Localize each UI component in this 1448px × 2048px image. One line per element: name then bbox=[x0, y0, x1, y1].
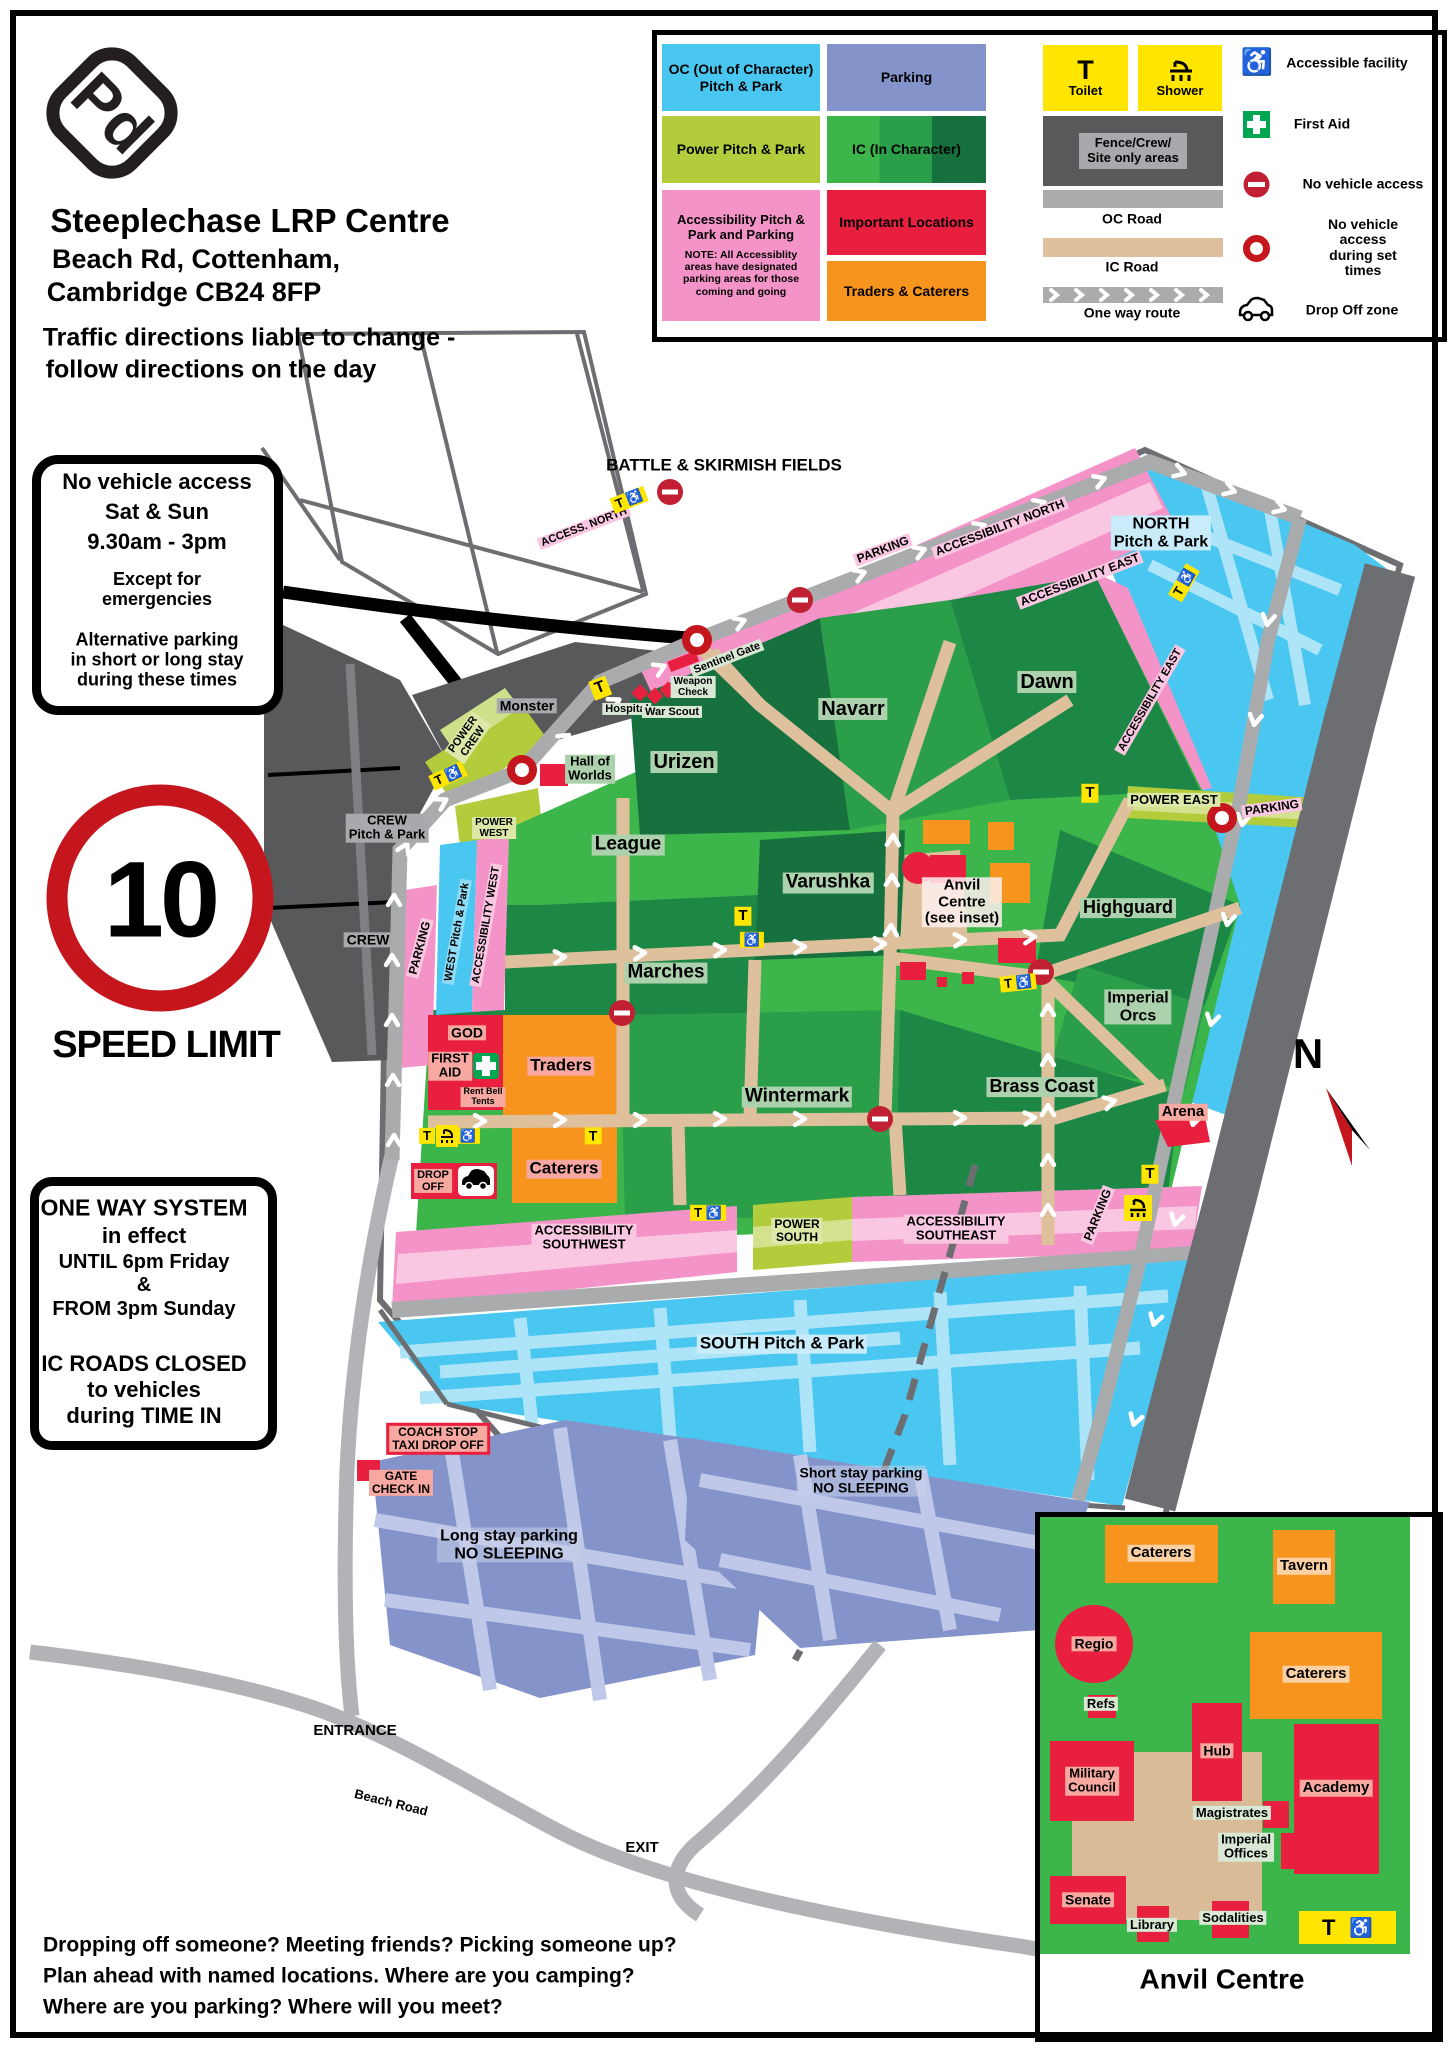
inset-toilet-box: T♿ bbox=[1299, 1911, 1396, 1944]
accessibility-southwest-label: ACCESSIBILITY SOUTHWEST bbox=[532, 1224, 637, 1253]
toilet-icon: T bbox=[1077, 57, 1094, 84]
traffic-note2: follow directions on the day bbox=[43, 356, 380, 384]
legend-toilet-swatch: T Toilet bbox=[1043, 45, 1128, 111]
one-way-l7: to vehicles bbox=[84, 1378, 204, 1402]
logo: Pd bbox=[37, 38, 187, 188]
legend-ic-swatch: IC (In Character) bbox=[827, 116, 986, 183]
crew-label: CREW bbox=[344, 932, 393, 947]
wheelchair-icon: ♿ bbox=[1238, 48, 1276, 77]
coach-stop-label: COACH STOP TAXI DROP OFF bbox=[386, 1423, 490, 1455]
toilet-box: T bbox=[1141, 1165, 1158, 1184]
no-access-l2: Sat & Sun bbox=[102, 500, 212, 524]
accessible-box: ♿ bbox=[456, 1128, 480, 1144]
no-access-l1: No vehicle access bbox=[59, 470, 255, 494]
north-pitch-label: NORTH Pitch & Park bbox=[1111, 515, 1211, 550]
one-way-chevrons bbox=[1043, 287, 1223, 303]
battle-fields-label: BATTLE & SKIRMISH FIELDS bbox=[603, 457, 845, 476]
address-line2: Cambridge CB24 8FP bbox=[44, 278, 325, 308]
toilet-accessible-box: T ♿ bbox=[690, 1205, 726, 1221]
shower-icon bbox=[436, 1125, 458, 1147]
navarr-label: Navarr bbox=[818, 698, 887, 720]
inset-sodalities-label: Sodalities bbox=[1199, 1911, 1266, 1925]
address-line1: Beach Rd, Cottenham, bbox=[49, 245, 343, 275]
legend-oc-road-bar bbox=[1043, 190, 1223, 208]
legend-toilet-label: Toilet bbox=[1069, 84, 1103, 99]
traffic-note1: Traffic directions liable to change - bbox=[40, 324, 459, 352]
league-label: League bbox=[592, 835, 665, 856]
entrance-label: ENTRANCE bbox=[310, 1723, 399, 1740]
wheelchair-icon: ♿ bbox=[1349, 1916, 1373, 1940]
legend-power-swatch: Power Pitch & Park bbox=[662, 116, 820, 183]
legend-ic-road-label: IC Road bbox=[1103, 259, 1162, 274]
gate-check-in-label: GATE CHECK IN bbox=[369, 1470, 433, 1496]
highguard-label: Highguard bbox=[1080, 898, 1176, 918]
one-way-l1: ONE WAY SYSTEM bbox=[37, 1195, 250, 1220]
no-entry-icon bbox=[1243, 171, 1270, 198]
power-south-label: POWER SOUTH bbox=[771, 1218, 822, 1244]
legend-important-swatch: Important Locations bbox=[827, 190, 986, 255]
shower-icon bbox=[1165, 58, 1195, 84]
legend-fence-swatch: Fence/Crew/ Site only areas bbox=[1043, 116, 1223, 186]
legend-first-aid-label: First Aid bbox=[1291, 116, 1353, 131]
monster-label: Monster bbox=[497, 698, 557, 713]
no-access-l5: Alternative parking in short or long sta… bbox=[67, 630, 246, 689]
footer-line1: Dropping off someone? Meeting friends? P… bbox=[40, 1933, 680, 1956]
first-aid-label: FIRST AID bbox=[428, 1052, 472, 1081]
inset-magistrates-label: Magistrates bbox=[1193, 1806, 1271, 1820]
imperial-orcs-label: Imperial Orcs bbox=[1104, 989, 1171, 1024]
speed-label: SPEED LIMIT bbox=[49, 1025, 283, 1067]
first-aid-icon bbox=[1243, 111, 1270, 138]
compass-n-label: N bbox=[1290, 1031, 1326, 1077]
exit-label: EXIT bbox=[622, 1840, 661, 1857]
dawn-label: Dawn bbox=[1017, 671, 1076, 693]
one-way-l4: & bbox=[134, 1274, 154, 1296]
legend-oc-road-label: OC Road bbox=[1099, 211, 1165, 226]
accessible-box: ♿ bbox=[740, 932, 764, 948]
marches-label: Marches bbox=[624, 963, 707, 984]
long-stay-label: Long stay parking NO SLEEPING bbox=[437, 1527, 581, 1562]
inset-refs-label: Refs bbox=[1084, 1697, 1118, 1711]
urizen-label: Urizen bbox=[650, 751, 717, 773]
inset-hub-label: Hub bbox=[1200, 1743, 1233, 1758]
inset-imperial-label: Imperial Offices bbox=[1218, 1833, 1274, 1862]
inset-regio-label: Regio bbox=[1072, 1636, 1117, 1651]
footer-line2: Plan ahead with named locations. Where a… bbox=[40, 1964, 638, 1987]
anvil-centre-label: Anvil Centre (see inset) bbox=[922, 877, 1002, 927]
page-title: Steeplechase LRP Centre bbox=[47, 203, 452, 239]
toilet-icon: T bbox=[1322, 1915, 1335, 1941]
inset-military-label: Military Council bbox=[1065, 1767, 1119, 1796]
varushka-label: Varushka bbox=[783, 873, 874, 894]
legend-fence-label: Fence/Crew/ Site only areas bbox=[1079, 133, 1187, 169]
power-east-label: POWER EAST bbox=[1127, 793, 1220, 807]
one-way-l3: UNTIL 6pm Friday bbox=[56, 1251, 233, 1273]
inset-library-label: Library bbox=[1127, 1918, 1177, 1932]
shower-icon bbox=[1124, 1195, 1152, 1221]
legend-no-access-label: No vehicle access bbox=[1300, 176, 1427, 191]
legend-traders-swatch: Traders & Caterers bbox=[827, 261, 986, 321]
inset-senate-label: Senate bbox=[1062, 1892, 1114, 1907]
god-label: GOD bbox=[448, 1025, 486, 1040]
war-scout-label: War Scout bbox=[642, 706, 702, 718]
legend-ic-road-bar bbox=[1043, 238, 1223, 257]
one-way-l5: FROM 3pm Sunday bbox=[49, 1298, 238, 1320]
one-way-l2: in effect bbox=[99, 1224, 189, 1248]
caterers-label: Caterers bbox=[527, 1160, 602, 1179]
hall-of-worlds-label: Hall of Worlds bbox=[565, 755, 615, 784]
wheelchair-icon: ♿ bbox=[1015, 973, 1033, 990]
traders-label: Traders bbox=[527, 1057, 594, 1076]
inset-tavern-label: Tavern bbox=[1277, 1558, 1331, 1575]
toilet-box: T bbox=[734, 907, 751, 926]
inset-academy-label: Academy bbox=[1300, 1780, 1373, 1797]
speed-value: 10 bbox=[101, 841, 219, 960]
site-map-poster: Pd Steeplechase LRP Centre Beach Rd, Cot… bbox=[0, 0, 1448, 2048]
south-pitch-label: SOUTH Pitch & Park bbox=[697, 1335, 867, 1354]
legend-parking-swatch: Parking bbox=[827, 44, 986, 111]
wheelchair-icon: ♿ bbox=[460, 1128, 476, 1143]
toilet-box: T bbox=[1081, 784, 1098, 803]
inset-caterers-top-label: Caterers bbox=[1128, 1545, 1195, 1562]
legend-no-access-times-label: No vehicle access during set times bbox=[1321, 217, 1406, 279]
power-west-label: POWER WEST bbox=[472, 817, 516, 839]
footer-line3: Where are you parking? Where will you me… bbox=[40, 1995, 506, 2018]
drop-off-label: DROP OFF bbox=[414, 1169, 452, 1193]
inset-caterers-right-label: Caterers bbox=[1283, 1666, 1350, 1683]
legend-one-way-label: One way route bbox=[1081, 305, 1183, 320]
rent-bell-tents-label: Rent Bell Tents bbox=[460, 1087, 505, 1107]
legend-oc-swatch: OC (Out of Character) Pitch & Park bbox=[662, 44, 820, 111]
legend-one-way-bar bbox=[1043, 287, 1223, 303]
legend-accessibility-title: Accessibility Pitch & Park and Parking bbox=[677, 213, 805, 243]
first-aid-icon bbox=[473, 1053, 499, 1079]
wheelchair-icon: ♿ bbox=[744, 932, 760, 947]
wintermark-label: Wintermark bbox=[742, 1087, 852, 1108]
inset-academy-box bbox=[1294, 1724, 1379, 1874]
weapon-check-label: Weapon Check bbox=[671, 676, 716, 698]
brass-coast-label: Brass Coast bbox=[986, 1077, 1097, 1097]
legend-shower-label: Shower bbox=[1157, 84, 1204, 99]
legend-drop-off-label: Drop Off zone bbox=[1303, 302, 1402, 317]
no-access-l3: 9.30am - 3pm bbox=[84, 530, 229, 554]
arena-label: Arena bbox=[1159, 1104, 1208, 1121]
legend-shower-swatch: Shower bbox=[1138, 45, 1222, 111]
compass-north-arrow bbox=[1326, 1088, 1370, 1166]
toilet-box: T bbox=[585, 1127, 602, 1144]
no-access-l4: Except for emergencies bbox=[99, 570, 215, 610]
toilet-box: T bbox=[419, 1128, 435, 1144]
inset-imperial-box bbox=[1281, 1833, 1294, 1869]
short-stay-label: Short stay parking NO SLEEPING bbox=[797, 1466, 926, 1497]
wheelchair-icon: ♿ bbox=[706, 1205, 722, 1220]
legend-accessibility-swatch: Accessibility Pitch & Park and Parking N… bbox=[662, 190, 820, 321]
crew-pitch-park-label: CREW Pitch & Park bbox=[346, 814, 429, 843]
accessibility-southeast-label: ACCESSIBILITY SOUTHEAST bbox=[904, 1215, 1009, 1244]
inset-title: Anvil Centre bbox=[1137, 1965, 1308, 1996]
one-way-l8: during TIME IN bbox=[63, 1404, 224, 1428]
drop-off-car-icon bbox=[1237, 296, 1275, 324]
no-access-set-times-icon bbox=[1243, 235, 1270, 262]
legend-accessible-label: Accessible facility bbox=[1283, 55, 1410, 70]
pd-logo-icon: Pd bbox=[37, 38, 187, 188]
legend-accessibility-note: NOTE: All Accessiblity areas have design… bbox=[683, 249, 799, 297]
one-way-l6: IC ROADS CLOSED bbox=[38, 1352, 249, 1376]
